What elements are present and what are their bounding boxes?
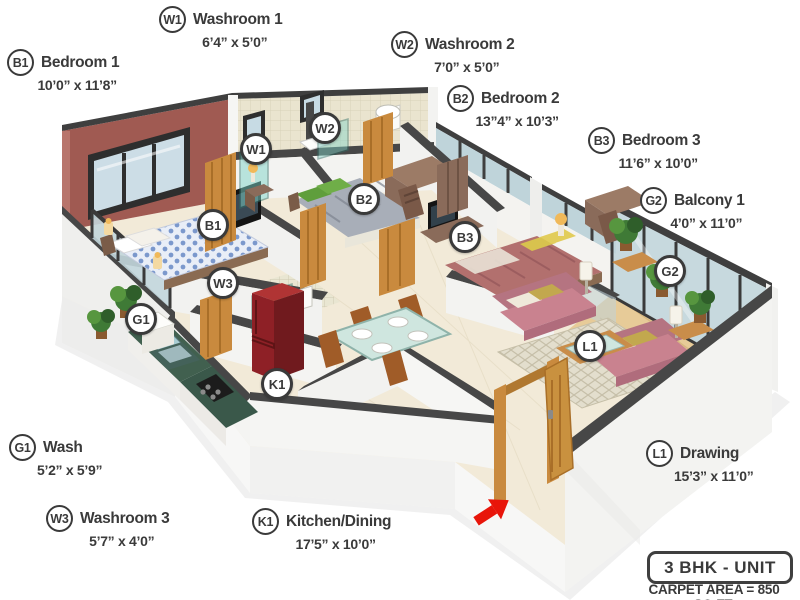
label-washroom-1: W1Washroom 1 6’4” x 5’0”: [159, 6, 282, 50]
room-badge-g2: G2: [654, 255, 686, 287]
cabinet-bedroom3: [437, 155, 468, 218]
refrigerator: [252, 283, 304, 380]
unit-type-box: 3 BHK - UNIT: [647, 551, 793, 584]
floorplan-page: B1 W1 W2 B2 B3 G2 G1 W3 K1 L1 B1Bedroom …: [0, 0, 800, 600]
room-badge-g1: G1: [125, 303, 157, 335]
bedroom3-code-icon: B3: [588, 127, 615, 154]
room-badge-b1: B1: [197, 209, 229, 241]
room-badge-l1: L1: [574, 330, 606, 362]
washroom1-code-icon: W1: [159, 6, 186, 33]
room-badge-b3: B3: [449, 221, 481, 253]
label-washroom-2: W2Washroom 2 7’0” x 5’0”: [391, 31, 514, 75]
label-kitchen-dining: K1Kitchen/Dining 17’5” x 10’0”: [252, 508, 391, 552]
room-badge-w1: W1: [240, 133, 272, 165]
room-badge-w3: W3: [207, 267, 239, 299]
label-wash: G1Wash 5’2” x 5’9”: [9, 434, 102, 478]
wardrobe-bedroom2: [300, 203, 326, 289]
door-bedroom3: [379, 218, 415, 296]
bedroom2-code-icon: B2: [447, 85, 474, 112]
wash-code-icon: G1: [9, 434, 36, 461]
room-badge-k1: K1: [261, 368, 293, 400]
washroom3-code-icon: W3: [46, 505, 73, 532]
label-bedroom-3: B3Bedroom 3 11’6” x 10’0”: [588, 127, 700, 171]
room-badge-b2: B2: [348, 183, 380, 215]
balcony1-code-icon: G2: [640, 187, 667, 214]
label-washroom-3: W3Washroom 3 5’7” x 4’0”: [46, 505, 169, 549]
carpet-area-text: CARPET AREA = 850 SQ.FT.: [628, 582, 800, 600]
room-badge-w2: W2: [309, 112, 341, 144]
label-drawing: L1Drawing 15’3” x 11’0”: [646, 440, 753, 484]
label-balcony-1: G2Balcony 1 4’0” x 11’0”: [640, 187, 745, 231]
bedroom1-code-icon: B1: [7, 49, 34, 76]
label-bedroom-2: B2Bedroom 2 13”4” x 10’3”: [447, 85, 559, 129]
door-washroom2: [363, 112, 393, 186]
label-bedroom-1: B1Bedroom 1 10’0” x 11’8”: [7, 49, 119, 93]
drawing-code-icon: L1: [646, 440, 673, 467]
washroom2-code-icon: W2: [391, 31, 418, 58]
kitchen-code-icon: K1: [252, 508, 279, 535]
